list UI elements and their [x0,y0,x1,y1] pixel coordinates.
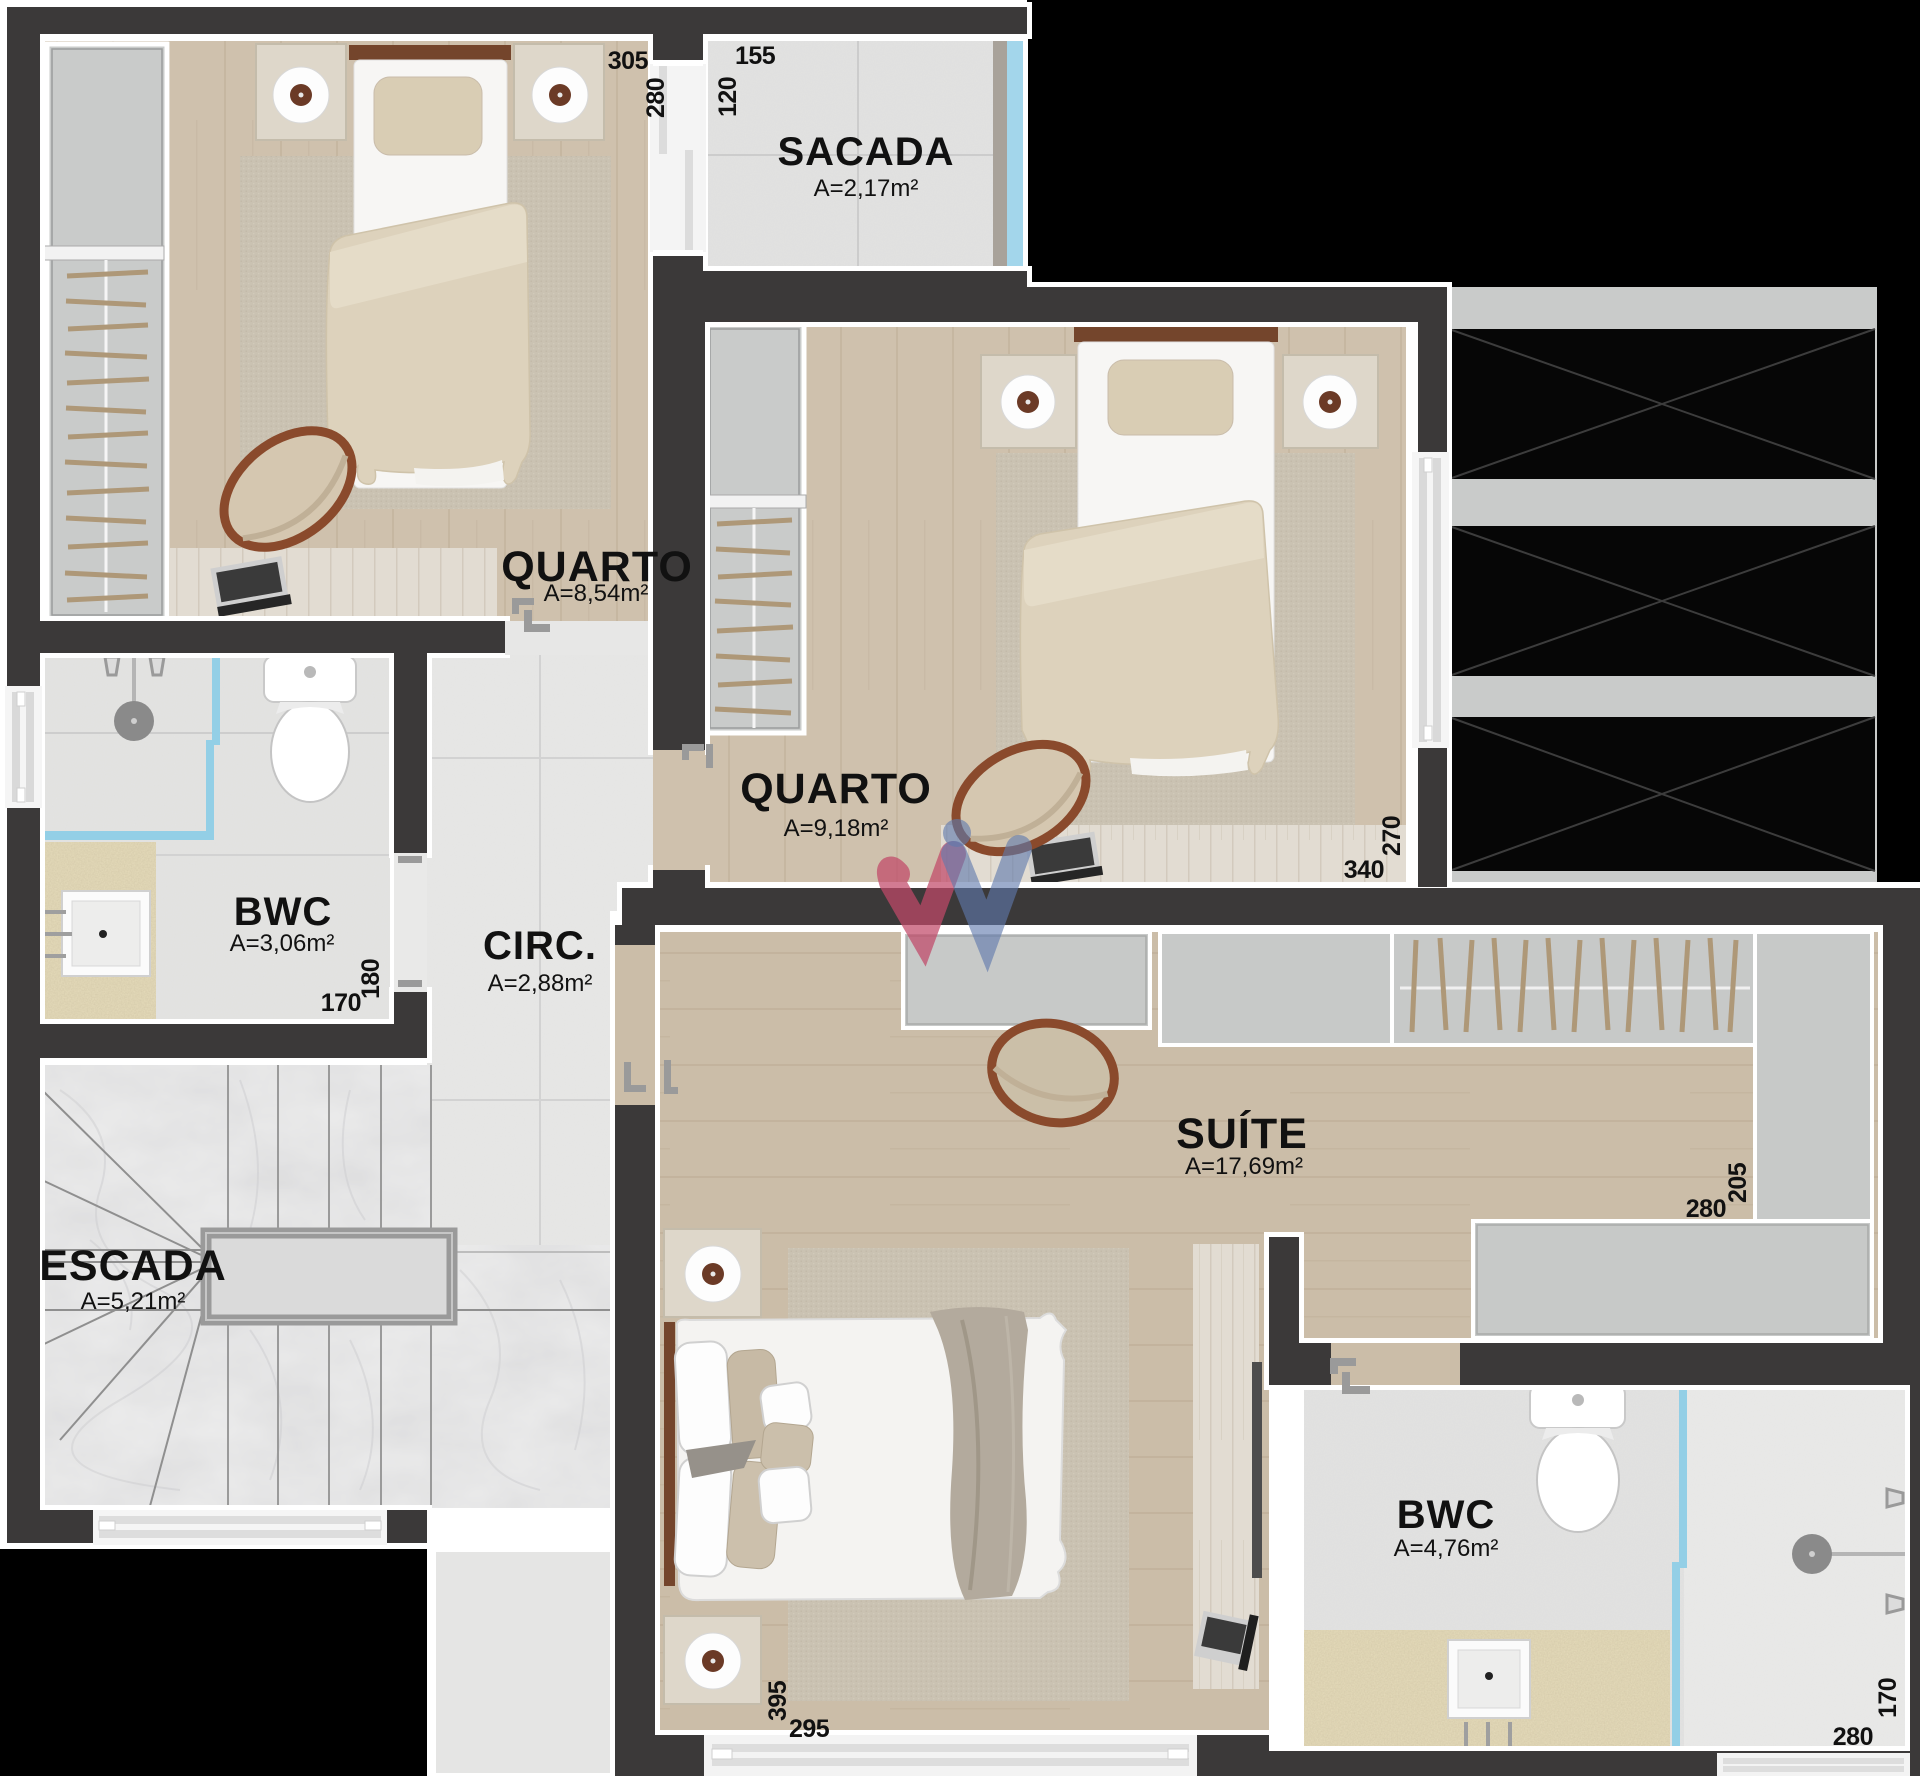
svg-text:170: 170 [321,989,361,1017]
svg-text:SUÍTE: SUÍTE [1176,1110,1308,1158]
svg-text:BWC: BWC [234,890,333,934]
svg-text:A=8,54m²: A=8,54m² [544,580,649,607]
svg-text:205: 205 [1724,1162,1752,1203]
svg-text:A=2,88m²: A=2,88m² [488,970,593,997]
svg-text:170: 170 [1874,1678,1902,1718]
svg-text:A=4,76m²: A=4,76m² [1394,1535,1499,1562]
svg-text:BWC: BWC [1397,1493,1496,1537]
svg-text:A=3,06m²: A=3,06m² [230,930,335,957]
svg-text:280: 280 [1833,1723,1873,1751]
svg-text:CIRC.: CIRC. [483,924,597,968]
svg-text:A=17,69m²: A=17,69m² [1185,1153,1303,1180]
svg-text:QUARTO: QUARTO [740,765,932,813]
svg-text:155: 155 [735,42,776,70]
svg-text:295: 295 [789,1715,830,1743]
svg-text:305: 305 [608,47,649,75]
svg-text:270: 270 [1378,816,1406,856]
svg-text:A=9,18m²: A=9,18m² [784,815,889,842]
svg-text:340: 340 [1344,856,1384,884]
svg-text:SACADA: SACADA [777,130,954,174]
svg-text:280: 280 [642,78,670,118]
svg-text:A=2,17m²: A=2,17m² [814,175,919,202]
svg-text:ESCADA: ESCADA [39,1242,227,1290]
svg-text:280: 280 [1686,1195,1726,1223]
svg-text:A=5,21m²: A=5,21m² [81,1288,186,1315]
svg-text:120: 120 [714,77,742,117]
svg-text:180: 180 [357,959,385,999]
svg-text:395: 395 [764,1680,792,1721]
